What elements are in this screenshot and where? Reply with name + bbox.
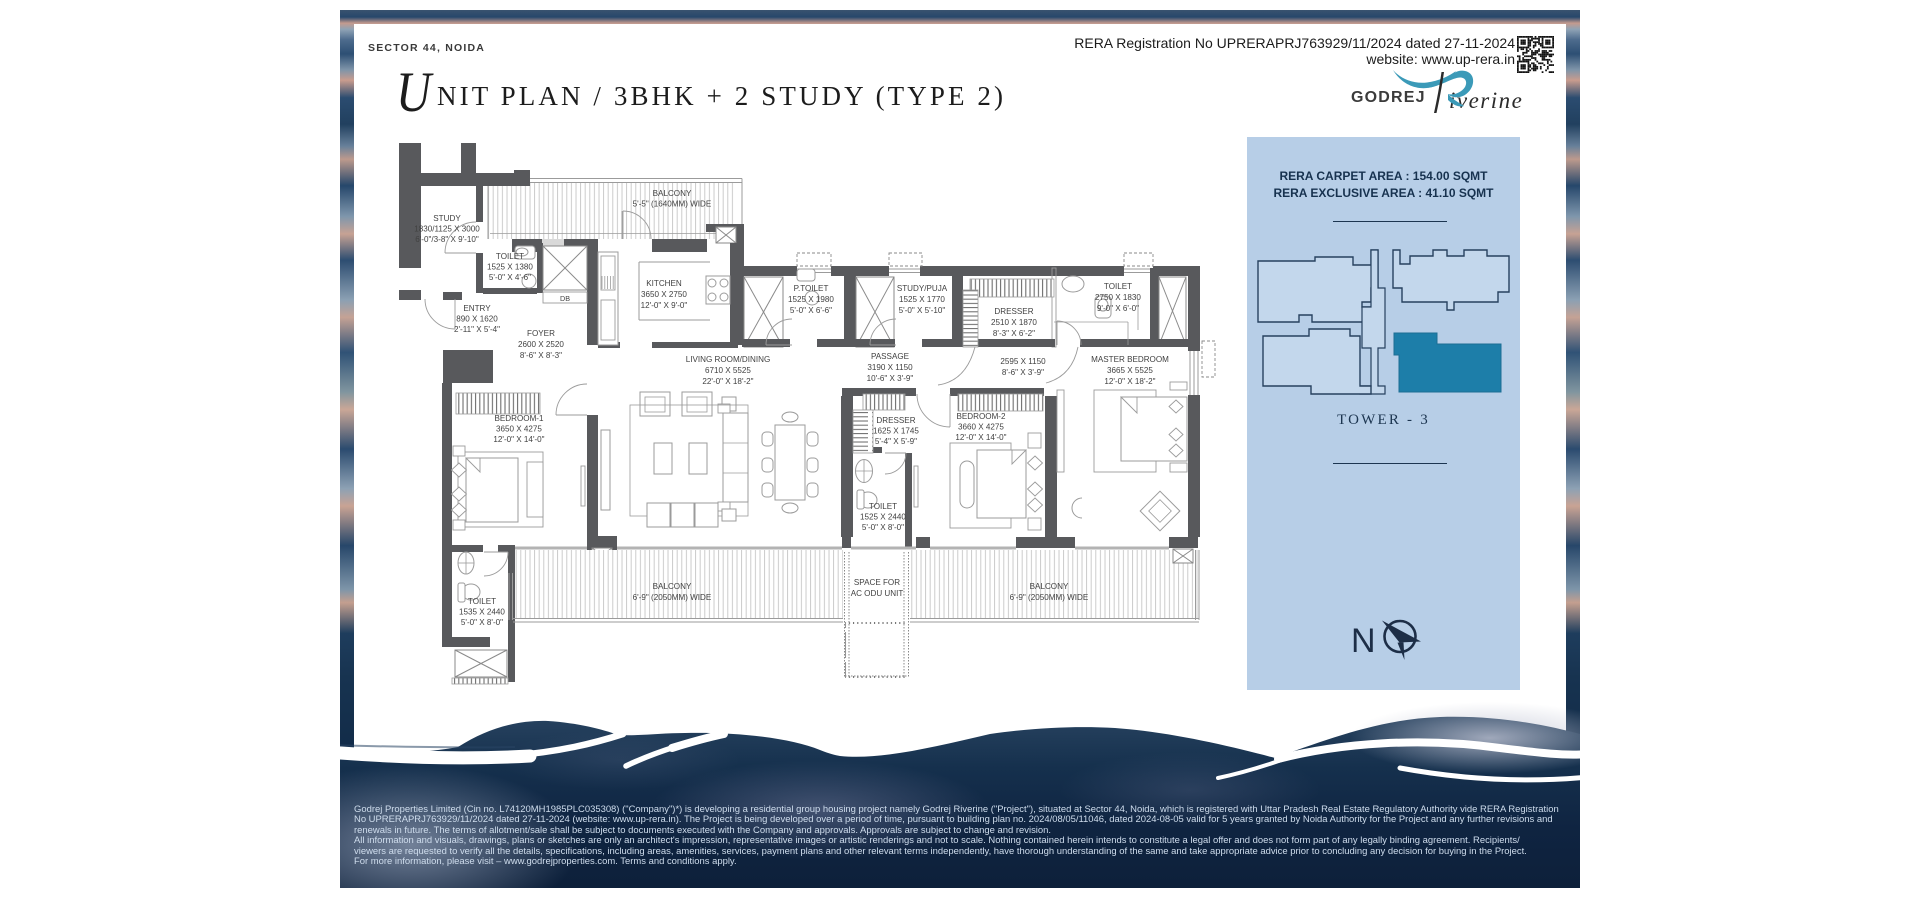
svg-text:AC ODU UNIT: AC ODU UNIT — [851, 589, 904, 598]
svg-text:22'-0" X 18'-2": 22'-0" X 18'-2" — [702, 377, 753, 386]
svg-text:890 X 1620: 890 X 1620 — [456, 314, 498, 323]
svg-text:12'-0" X 14'-0": 12'-0" X 14'-0" — [955, 433, 1006, 442]
svg-text:PASSAGE: PASSAGE — [871, 352, 910, 361]
svg-text:SPACE FOR: SPACE FOR — [854, 578, 900, 587]
svg-text:TOILET: TOILET — [1104, 282, 1132, 291]
svg-text:1525 X 1980: 1525 X 1980 — [788, 295, 834, 304]
svg-text:TOILET: TOILET — [869, 502, 897, 511]
svg-text:6'-0"/3-8" X 9'-10": 6'-0"/3-8" X 9'-10" — [415, 235, 479, 244]
svg-text:P.TOILET: P.TOILET — [794, 284, 829, 293]
svg-text:MASTER BEDROOM: MASTER BEDROOM — [1091, 355, 1169, 364]
svg-text:5'-0" X 8'-0": 5'-0" X 8'-0" — [862, 523, 904, 532]
svg-text:5'-0" X 5'-10": 5'-0" X 5'-10" — [899, 306, 946, 315]
svg-text:6710 X 5525: 6710 X 5525 — [705, 366, 751, 375]
svg-text:TOILET: TOILET — [496, 252, 524, 261]
svg-text:N: N — [1351, 622, 1376, 660]
svg-text:5'-5" (1640MM) WIDE: 5'-5" (1640MM) WIDE — [633, 199, 712, 208]
svg-text:2510 X 1870: 2510 X 1870 — [991, 318, 1037, 327]
svg-text:FOYER: FOYER — [527, 329, 555, 338]
svg-text:3650 X 4275: 3650 X 4275 — [496, 424, 542, 433]
svg-text:BALCONY: BALCONY — [1030, 582, 1069, 591]
svg-text:DB: DB — [560, 294, 570, 303]
svg-text:5'-0" X 4'-6": 5'-0" X 4'-6" — [489, 273, 531, 282]
svg-text:1625 X 1745: 1625 X 1745 — [873, 426, 919, 435]
svg-text:3660 X 4275: 3660 X 4275 — [958, 422, 1004, 431]
svg-text:2750 X 1830: 2750 X 1830 — [1095, 293, 1141, 302]
svg-text:12'-0" X 9'-0": 12'-0" X 9'-0" — [641, 301, 688, 310]
svg-text:8'-6" X 8'-3": 8'-6" X 8'-3" — [520, 351, 562, 360]
svg-text:2600 X 2520: 2600 X 2520 — [518, 340, 564, 349]
svg-text:1830/1125 X 3000: 1830/1125 X 3000 — [414, 224, 480, 233]
svg-text:LIVING ROOM/DINING: LIVING ROOM/DINING — [686, 355, 771, 364]
svg-text:KITCHEN: KITCHEN — [646, 279, 682, 288]
svg-text:1525 X 1380: 1525 X 1380 — [487, 262, 533, 271]
svg-text:6'-9" (2050MM) WIDE: 6'-9" (2050MM) WIDE — [633, 593, 712, 602]
svg-text:3190 X 1150: 3190 X 1150 — [867, 363, 913, 372]
svg-text:TOILET: TOILET — [468, 597, 496, 606]
svg-text:1525 X 1770: 1525 X 1770 — [899, 295, 945, 304]
svg-text:6'-9" (2050MM) WIDE: 6'-9" (2050MM) WIDE — [1010, 593, 1089, 602]
svg-text:BALCONY: BALCONY — [653, 189, 692, 198]
svg-text:ENTRY: ENTRY — [463, 304, 491, 313]
svg-text:5'-0" X 6'-6": 5'-0" X 6'-6" — [790, 306, 832, 315]
svg-text:STUDY/PUJA: STUDY/PUJA — [897, 284, 948, 293]
svg-text:1535 X 2440: 1535 X 2440 — [459, 607, 505, 616]
svg-text:STUDY: STUDY — [433, 214, 461, 223]
svg-text:BEDROOM-1: BEDROOM-1 — [494, 414, 544, 423]
svg-text:8'-6" X 3'-9": 8'-6" X 3'-9" — [1002, 368, 1044, 377]
svg-text:9'-0" X 6'-0": 9'-0" X 6'-0" — [1097, 304, 1139, 313]
svg-text:DRESSER: DRESSER — [994, 307, 1033, 316]
svg-text:BEDROOM-2: BEDROOM-2 — [956, 412, 1006, 421]
svg-text:5'-0" X 8'-0": 5'-0" X 8'-0" — [461, 618, 503, 627]
svg-text:3665 X 5525: 3665 X 5525 — [1107, 366, 1153, 375]
svg-text:12'-0" X 18'-2": 12'-0" X 18'-2" — [1104, 377, 1155, 386]
svg-text:5'-4" X 5'-9": 5'-4" X 5'-9" — [875, 437, 917, 446]
svg-text:BALCONY: BALCONY — [653, 582, 692, 591]
svg-text:10'-6" X 3'-9": 10'-6" X 3'-9" — [867, 374, 914, 383]
svg-text:3650 X 2750: 3650 X 2750 — [641, 290, 687, 299]
svg-text:8'-3" X 6'-2": 8'-3" X 6'-2" — [993, 329, 1035, 338]
svg-text:2595 X 1150: 2595 X 1150 — [1000, 357, 1046, 366]
svg-text:DRESSER: DRESSER — [876, 416, 915, 425]
svg-text:2'-11" X 5'-4": 2'-11" X 5'-4" — [454, 325, 500, 334]
svg-text:12'-0" X 14'-0": 12'-0" X 14'-0" — [493, 435, 544, 444]
svg-text:1525 X 2440: 1525 X 2440 — [860, 512, 906, 521]
